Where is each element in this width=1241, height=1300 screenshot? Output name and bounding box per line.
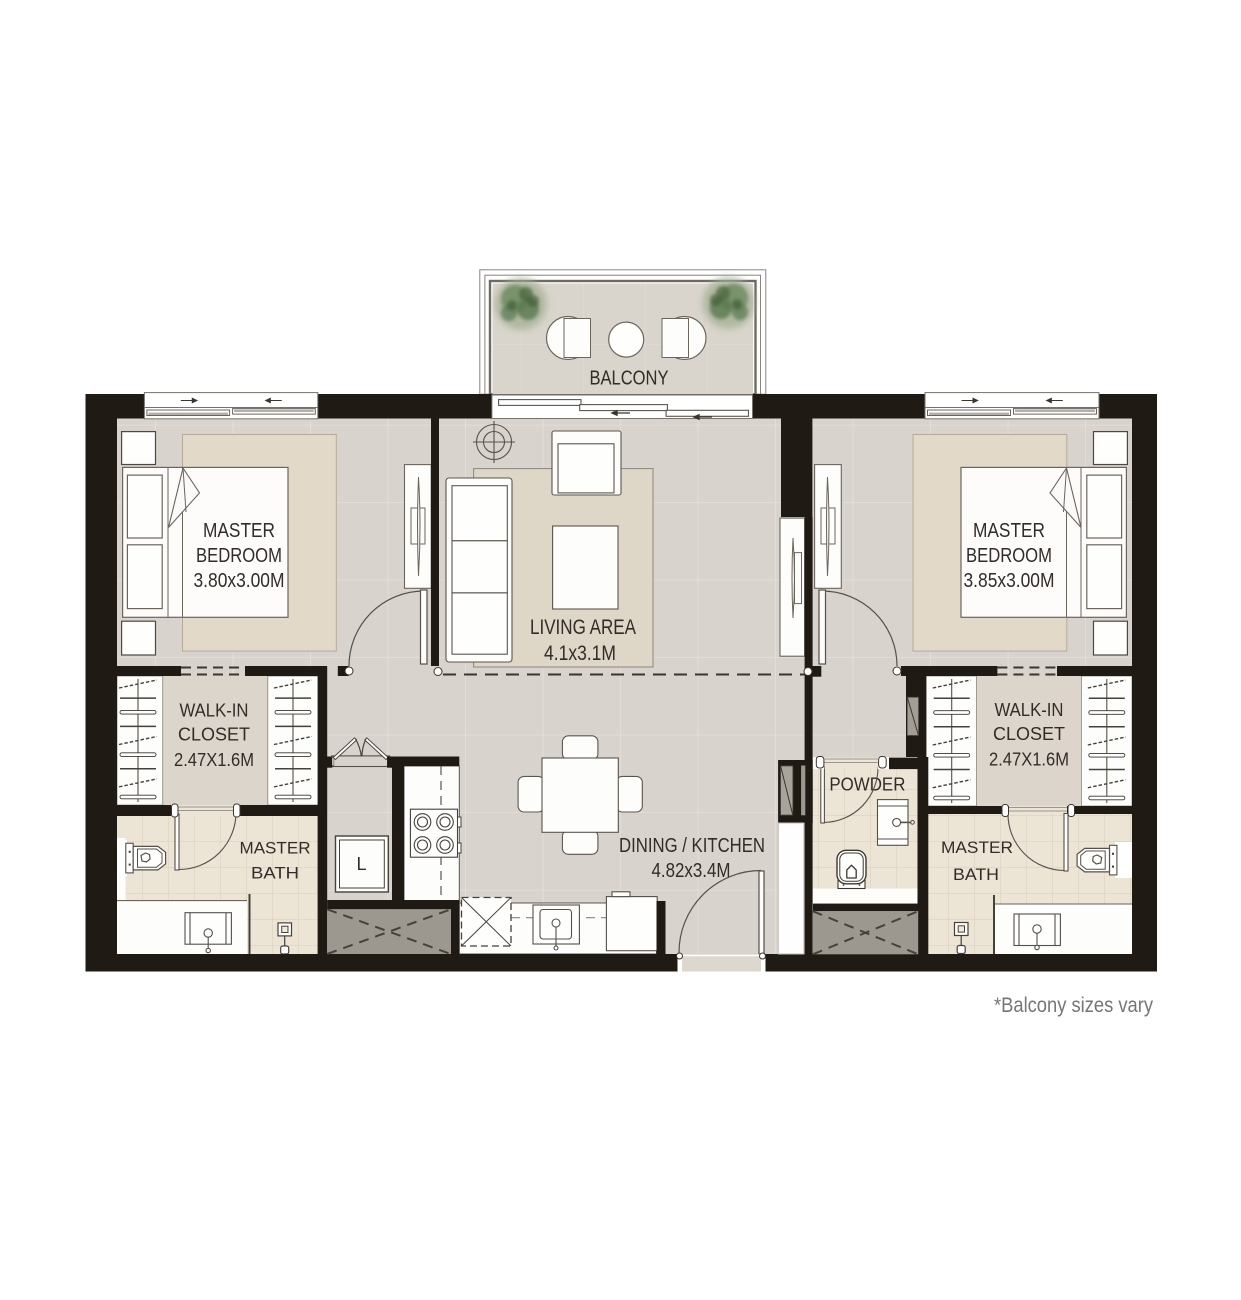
svg-text:POWDER: POWDER <box>829 774 905 795</box>
svg-text:LIVING AREA: LIVING AREA <box>530 616 636 639</box>
svg-text:3.80x3.00M: 3.80x3.00M <box>194 570 285 592</box>
svg-text:DINING / KITCHEN: DINING / KITCHEN <box>619 835 765 857</box>
svg-text:*Balcony sizes vary: *Balcony sizes vary <box>994 994 1153 1017</box>
svg-text:CLOSET: CLOSET <box>178 725 250 745</box>
svg-text:2.47X1.6M: 2.47X1.6M <box>174 750 254 770</box>
svg-text:2.47X1.6M: 2.47X1.6M <box>989 750 1069 770</box>
svg-text:MASTER: MASTER <box>941 838 1013 857</box>
svg-text:4.1x3.1M: 4.1x3.1M <box>544 642 616 665</box>
svg-text:MASTER: MASTER <box>240 839 311 858</box>
svg-text:MASTER: MASTER <box>973 520 1045 542</box>
svg-text:CLOSET: CLOSET <box>993 724 1065 744</box>
svg-text:WALK-IN: WALK-IN <box>995 700 1064 720</box>
svg-text:BATH: BATH <box>953 865 999 884</box>
svg-text:L: L <box>356 854 366 874</box>
svg-text:BALCONY: BALCONY <box>590 368 669 390</box>
svg-text:MASTER: MASTER <box>203 520 275 542</box>
svg-text:BATH: BATH <box>251 864 299 883</box>
svg-text:4.82x3.4M: 4.82x3.4M <box>652 860 731 882</box>
svg-text:BEDROOM: BEDROOM <box>196 545 282 567</box>
svg-text:3.85x3.00M: 3.85x3.00M <box>964 570 1055 592</box>
svg-text:WALK-IN: WALK-IN <box>180 701 249 721</box>
svg-text:BEDROOM: BEDROOM <box>966 545 1052 567</box>
